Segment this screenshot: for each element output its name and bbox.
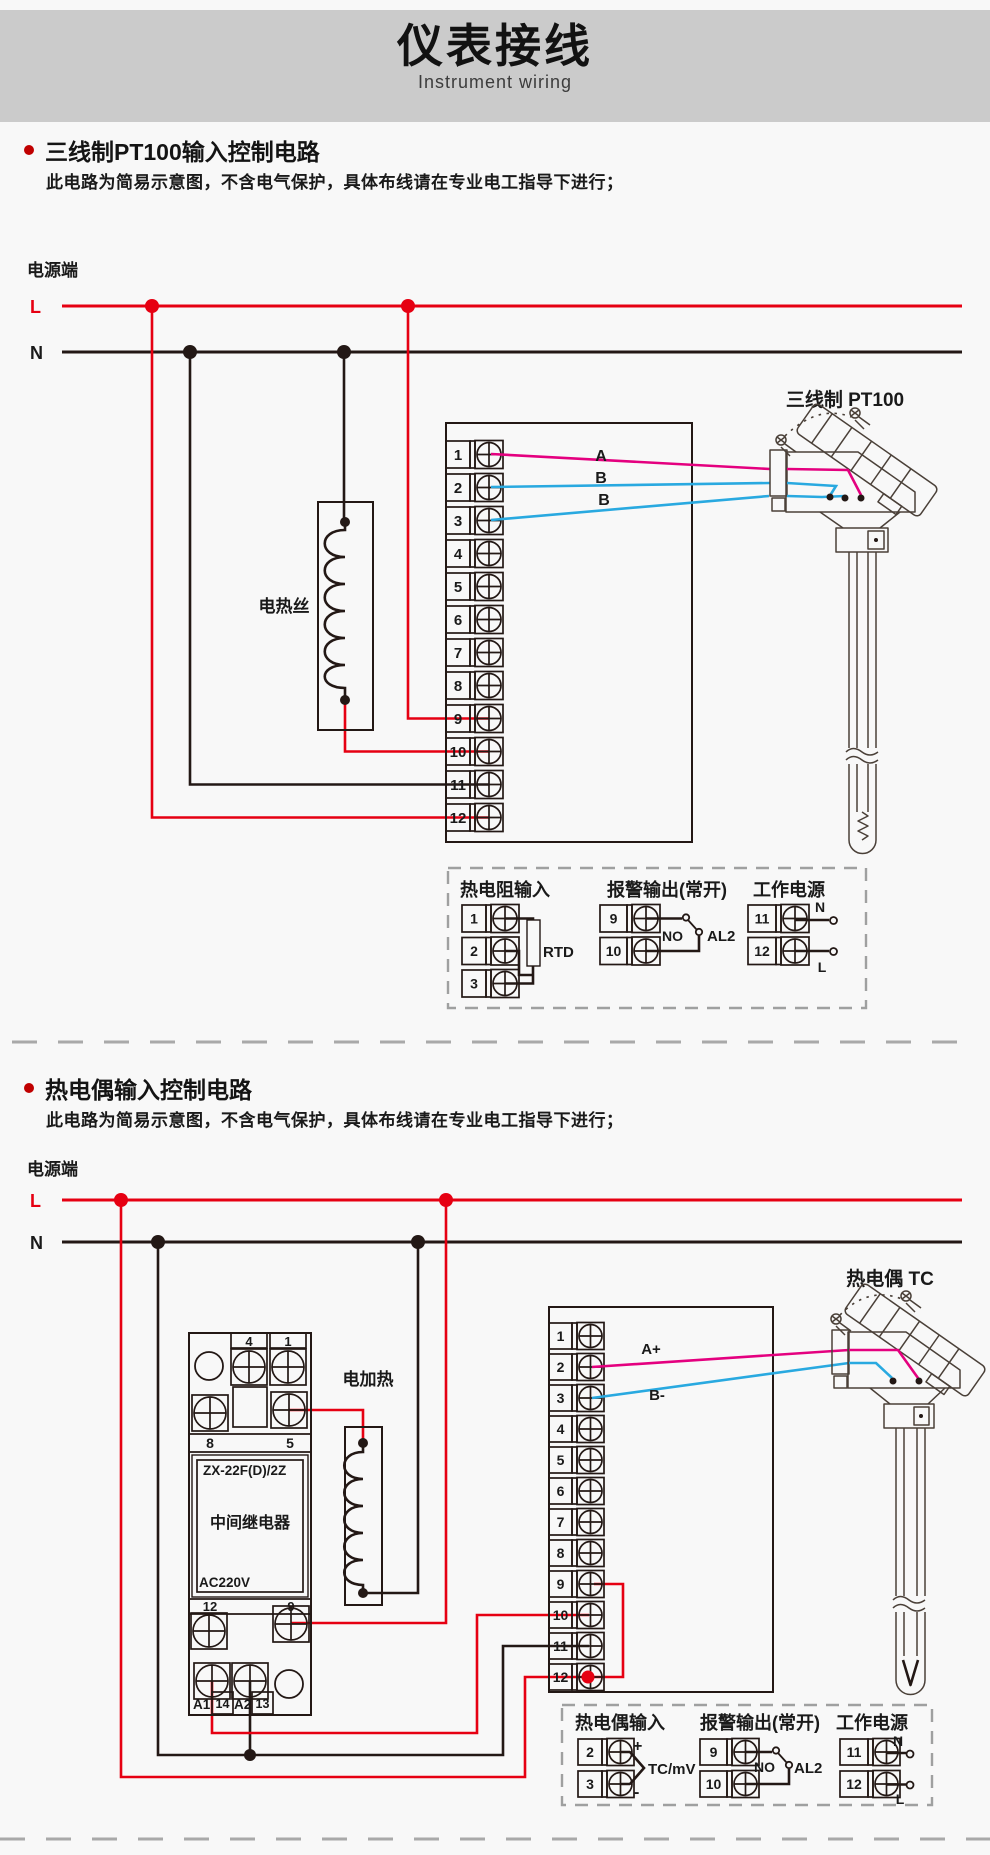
terminal-strip-1: 123456789101112 — [446, 441, 503, 832]
cap-screw-icon — [850, 408, 870, 429]
junction-dot — [582, 1671, 595, 1684]
sensor-funnel — [870, 1388, 945, 1404]
terminal-number: 1 — [557, 1328, 565, 1344]
terminal-number: 2 — [557, 1359, 565, 1375]
terminal-row: 12 — [446, 804, 503, 832]
wire-label-b-minus: B- — [649, 1387, 665, 1404]
relay-screw — [191, 1613, 227, 1649]
screw-terminal-icon — [191, 1613, 227, 1649]
terminal-row: 10 — [446, 738, 503, 766]
legend1: 热电阻输入 报警输出(常开) 工作电源 123 910 1112 RTD NO … — [448, 868, 866, 1008]
legend-power-title: 工作电源 — [836, 1712, 908, 1733]
terminal-row: 11 — [446, 771, 503, 799]
heater-label: 电加热 — [343, 1369, 394, 1389]
screw-terminal-icon — [475, 804, 503, 832]
screw-terminal-icon — [577, 1540, 604, 1567]
screw-terminal-icon — [577, 1571, 604, 1598]
terminal-row: 5 — [446, 573, 503, 601]
relay-screw — [273, 1606, 309, 1642]
terminal-row: 8 — [446, 672, 503, 700]
terminal-number: 4 — [557, 1421, 565, 1437]
al2-label: AL2 — [794, 1760, 822, 1777]
screw-terminal-icon — [577, 1602, 604, 1629]
terminal-row: 8 — [549, 1540, 604, 1567]
terminal-number: 3 — [557, 1390, 565, 1406]
screw-terminal-icon — [271, 1392, 307, 1428]
sensor-probe-shaft — [846, 552, 878, 854]
no-label: NO — [662, 928, 683, 944]
terminal-row: 11 — [748, 905, 809, 933]
terminal-number: 10 — [553, 1607, 569, 1623]
legend-alarm-title: 报警输出(常开) — [700, 1712, 820, 1733]
screw-terminal-icon — [577, 1447, 604, 1474]
terminal-row: 11 — [549, 1633, 604, 1660]
screw-terminal-icon — [232, 1663, 268, 1699]
head-wire-b1 — [787, 483, 836, 494]
head-wire-b — [849, 1363, 892, 1378]
screw-terminal-icon — [475, 705, 503, 733]
screw-terminal-icon — [475, 540, 503, 568]
relay-terminal-label: 12 — [203, 1599, 217, 1614]
relay-indicator — [195, 1352, 223, 1380]
heater-coil-icon — [344, 1443, 363, 1593]
sensor-head-body — [786, 452, 915, 512]
legend-tc-terminals: 23 — [578, 1739, 634, 1798]
wiring-diagrams-canvas: 电源端 L N 电热丝 12 — [0, 0, 990, 1855]
terminal-number: 11 — [847, 1744, 862, 1760]
wire-b-minus — [592, 1363, 849, 1398]
cap-chain-dotted-arc — [840, 1295, 902, 1315]
wire-l-to-terminal-12 — [121, 1200, 589, 1777]
relay-terminal-label: 8 — [206, 1435, 214, 1451]
tc-label: TC/mV — [648, 1761, 696, 1778]
terminal-row: 5 — [549, 1447, 604, 1474]
terminal-number: 5 — [454, 579, 462, 596]
relay-name: 中间继电器 — [210, 1513, 291, 1532]
terminal-number: 2 — [470, 943, 478, 959]
relay-model: ZX-22F(D)/2Z — [203, 1463, 286, 1478]
legend-alarm-title: 报警输出(常开) — [607, 879, 727, 900]
line-l-label: L — [30, 1191, 41, 1211]
screw-terminal-icon — [475, 573, 503, 601]
al2-label: AL2 — [707, 928, 735, 945]
relay-indicator — [275, 1670, 303, 1698]
terminal-number: 6 — [454, 612, 462, 629]
terminal-number: 4 — [454, 546, 463, 563]
wire-a-plus — [592, 1350, 849, 1367]
page: 仪表接线 Instrument wiring 三线制PT100输入控制电路 此电… — [0, 0, 990, 1855]
relay-screw — [192, 1395, 228, 1431]
legend-tc-title: 热电偶输入 — [575, 1712, 665, 1733]
tc-sensor: 热电偶 TC — [831, 1267, 987, 1695]
pt100-sensor: 三线制 PT100 — [770, 388, 939, 854]
screw-terminal-icon — [577, 1509, 604, 1536]
relay-screw — [270, 1349, 306, 1385]
line-n-label: N — [30, 1233, 43, 1253]
power-n-label: N — [815, 899, 825, 915]
no-contact-icon — [688, 920, 697, 930]
tc-junction-icon — [903, 1660, 918, 1685]
terminal-row: 6 — [446, 606, 503, 634]
screw-terminal-icon — [231, 1349, 267, 1385]
terminal-row: 4 — [549, 1416, 604, 1443]
screw-terminal-icon — [577, 1323, 604, 1350]
line-l-label: L — [30, 297, 41, 317]
wire-n-to-heater — [366, 1242, 418, 1593]
terminal-row: 7 — [446, 639, 503, 667]
relay-coil-label: A2 — [234, 1697, 251, 1712]
screw-terminal-icon — [273, 1606, 309, 1642]
wire-label-b2: B — [598, 492, 610, 509]
terminal-row: 9 — [446, 705, 503, 733]
terminal-number: 12 — [754, 943, 770, 959]
screw-terminal-icon — [475, 771, 503, 799]
tc-minus: - — [634, 1784, 639, 1801]
diagram2-tc-circuit: 电源端 L N 4 1 — [27, 1159, 987, 1807]
head-wire-b2 — [787, 496, 845, 497]
legend2: 热电偶输入 报警输出(常开) 工作电源 23 910 1112 + - TC/m… — [562, 1705, 932, 1807]
terminal-number: 6 — [557, 1483, 565, 1499]
head-wire-a — [787, 469, 861, 495]
terminal-number: 8 — [454, 678, 462, 695]
wire-label-b1: B — [595, 470, 607, 487]
terminal-number: 10 — [450, 744, 467, 761]
tc-bracket — [621, 1752, 644, 1784]
relay-terminal-label: 5 — [286, 1435, 294, 1451]
relay-voltage: AC220V — [199, 1575, 250, 1590]
relay-coil-label: 14 — [216, 1697, 230, 1711]
terminal-row: 1 — [549, 1323, 604, 1350]
terminal-number: 5 — [557, 1452, 565, 1468]
junction-dot — [244, 1749, 256, 1761]
wire-l-to-terminal-12 — [152, 306, 489, 818]
terminal-number: 1 — [470, 911, 478, 927]
sensor-nut — [834, 1376, 847, 1388]
legend-power-title: 工作电源 — [753, 879, 825, 900]
screw-terminal-icon — [475, 639, 503, 667]
shaft-break-mark — [846, 749, 878, 764]
tc-plus: + — [633, 1738, 642, 1755]
relay-terminal-label: 4 — [245, 1334, 253, 1349]
wire-label-a: A — [595, 448, 607, 465]
heater-coil-icon — [325, 522, 345, 700]
heater-coil-1 — [318, 502, 373, 730]
terminal-number: 9 — [557, 1576, 565, 1592]
relay-terminal-label: 1 — [284, 1334, 291, 1349]
screw-terminal-icon — [577, 1478, 604, 1505]
screw-terminal-icon — [192, 1395, 228, 1431]
power-terminal-label: 电源端 — [27, 260, 78, 280]
power-l-label: L — [818, 959, 827, 975]
terminal-row: 7 — [549, 1509, 604, 1536]
terminal-number: 7 — [454, 645, 462, 662]
wire-label-a-plus: A+ — [641, 1341, 661, 1358]
intermediate-relay: 4 1 8 5 ZX-22F(D)/2Z 中间继电器 AC220V 12 9 A… — [189, 1333, 311, 1715]
terminal-row: 10 — [549, 1602, 604, 1629]
terminal-number: 8 — [557, 1545, 565, 1561]
terminal-row: 6 — [549, 1478, 604, 1505]
terminal-number: 11 — [450, 777, 466, 794]
no-label: NO — [754, 1759, 775, 1775]
relay-coil-label: 13 — [256, 1697, 270, 1711]
power-l-label: L — [896, 1791, 905, 1807]
terminal-strip-2: 123456789101112 — [549, 1323, 604, 1691]
rtd-resistor-icon — [527, 920, 540, 966]
screw-terminal-icon — [781, 905, 809, 933]
relay-screw — [232, 1663, 268, 1699]
legend-rtd-title: 热电阻输入 — [460, 879, 550, 900]
screw-terminal-icon — [475, 606, 503, 634]
terminal-number: 10 — [606, 943, 622, 959]
terminal-number: 9 — [710, 1744, 718, 1760]
wire-l-to-relay-9 — [291, 1200, 446, 1623]
junction-dot — [340, 517, 350, 527]
wire-a — [491, 454, 770, 469]
legend-alarm-terminals: 910 — [600, 905, 660, 966]
junction-dot — [340, 695, 350, 705]
power-terminal-label: 电源端 — [27, 1159, 78, 1179]
cap-screw-icon — [901, 1291, 921, 1312]
junction-dot — [183, 345, 197, 359]
wire-b2 — [491, 496, 769, 520]
wire-relay5-to-heater — [289, 1410, 363, 1440]
terminal-number: 3 — [454, 513, 462, 530]
terminal-number: 3 — [586, 1776, 594, 1792]
relay-screw — [271, 1392, 307, 1428]
terminal-number: 9 — [454, 711, 462, 728]
sensor-probe-shaft — [893, 1428, 925, 1695]
terminal-number: 9 — [610, 911, 618, 927]
terminal-number: 2 — [454, 480, 462, 497]
wire-heater-to-terminal-10 — [345, 700, 489, 752]
diagram1-pt100-circuit: 电源端 L N 电热丝 12 — [27, 260, 962, 1008]
wire-b1 — [491, 483, 770, 487]
legend-power-terminals: 1112 — [840, 1739, 900, 1798]
no-contact-icon — [778, 1753, 787, 1763]
diagram1-wires — [152, 306, 489, 818]
sensor-label: 三线制 PT100 — [786, 388, 904, 411]
terminal-row: 9 — [549, 1571, 604, 1598]
terminal-number: 12 — [846, 1776, 862, 1792]
screw-terminal-icon — [475, 672, 503, 700]
terminal-number: 1 — [454, 447, 462, 464]
sensor-label: 热电偶 TC — [846, 1267, 934, 1290]
screw-terminal-icon — [270, 1349, 306, 1385]
terminal-number: 12 — [553, 1669, 569, 1685]
sensor-funnel — [820, 512, 900, 528]
screw-terminal-icon — [475, 738, 503, 766]
junction-dot — [145, 299, 159, 313]
terminal-number: 7 — [557, 1514, 565, 1530]
heater-label: 电热丝 — [259, 596, 310, 616]
junction-dot — [337, 345, 351, 359]
relay-coil-label: A1 — [193, 1697, 211, 1712]
terminal-number: 11 — [553, 1638, 568, 1654]
shaft-break-mark — [893, 1597, 925, 1612]
power-wiring — [795, 920, 829, 951]
sensor-nut — [772, 498, 785, 511]
terminal-number: 10 — [706, 1776, 722, 1792]
terminal-number: 3 — [470, 976, 478, 992]
screw-terminal-icon — [577, 1416, 604, 1443]
legend-power-terminals: 1112 — [748, 905, 809, 966]
terminal-row: 12 — [549, 1664, 604, 1691]
junction-dot — [401, 299, 415, 313]
legend-alarm-terminals: 910 — [700, 1739, 759, 1798]
terminal-number: 12 — [450, 810, 467, 827]
power-n-label: N — [893, 1733, 903, 1749]
terminal-row: 4 — [446, 540, 503, 568]
cap-chain-dotted-arc — [785, 413, 851, 436]
screw-terminal-icon — [577, 1633, 604, 1660]
terminal-number: 11 — [755, 911, 770, 927]
terminal-number: 2 — [586, 1744, 594, 1760]
rtd-element-icon — [858, 812, 868, 840]
rtd-label: RTD — [543, 944, 574, 961]
line-n-label: N — [30, 343, 43, 363]
heater-coil-2 — [344, 1427, 382, 1605]
relay-screw — [231, 1349, 267, 1385]
sensor-nut — [770, 450, 787, 496]
